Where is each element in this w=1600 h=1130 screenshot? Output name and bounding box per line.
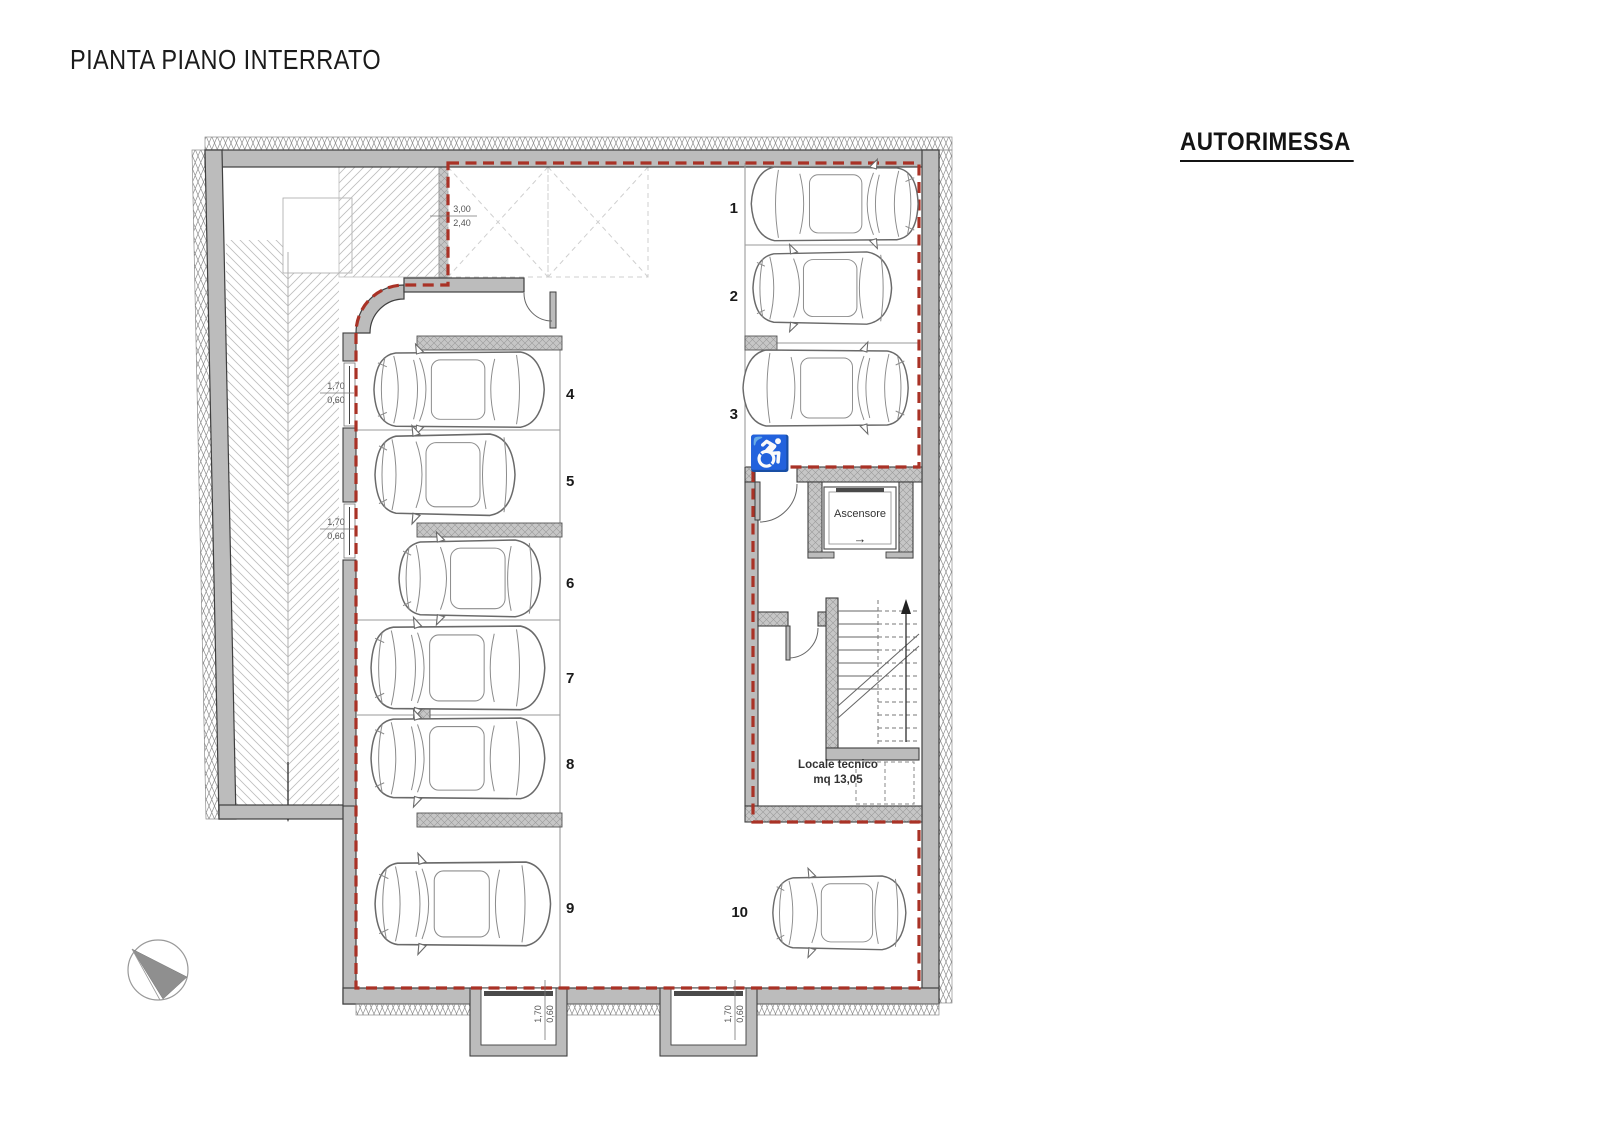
spot-number-3: 3 [730,406,738,423]
vent-window [344,504,355,558]
car-spot-6 [399,532,540,625]
car-spot-7 [371,617,545,718]
vent-window [344,363,355,426]
shaft-grille [674,991,743,996]
spot-number-9: 9 [566,900,574,917]
exterior-wall-bottom-insulation [567,1004,660,1015]
exterior-wall-bottom [343,988,939,1004]
exterior-wall-bottom-insulation [757,1004,939,1015]
ramp-bottom-wall [219,805,356,819]
car-spot-5 [375,426,515,524]
spot-number-8: 8 [566,756,574,773]
north-arrow-icon [128,940,188,1000]
accessible-parking-icon: ♿ [749,434,791,473]
ramp-garage-wall [343,333,356,806]
door-swing-top [524,292,556,328]
car-spot-2 [753,244,892,331]
dim-vent-height: 0,60 [327,395,345,405]
car-spot-4 [374,344,544,435]
spot-number-10: 10 [731,904,748,921]
dim-vent-width: 1,70 [327,517,345,527]
exterior-wall-bottom-insulation [356,1004,470,1015]
dim-ramp-width: 3,00 [453,204,471,214]
dim-shaft-width: 1,70 [723,1005,733,1023]
dim-shaft-width: 1,70 [533,1005,543,1023]
lower-left-wall [343,805,356,1004]
spot-number-1: 1 [730,200,738,217]
top-middle-wall [404,278,524,292]
shaft-grille [484,991,553,996]
car-spot-3 [743,342,908,434]
spot-number-2: 2 [730,288,738,305]
spot-number-5: 5 [566,473,574,490]
dim-ramp-height: 2,40 [453,218,471,228]
exterior-wall-top-insulation [205,137,952,150]
ramp [226,198,352,822]
car-spot-9 [375,853,550,954]
overhead-opening-trace [448,167,648,277]
dim-shaft-height: 0,60 [545,1005,555,1023]
dim-vent-height: 0,60 [327,531,345,541]
car-spot-10 [773,868,906,957]
technical-room-name: Locale tecnico [798,759,878,771]
exterior-wall-right-insulation [939,150,952,1003]
door-swing-technical-room [786,626,818,660]
floor-plan: Ascensore → Locale tecnico mq 13,05 [0,0,1600,1130]
technical-room-area: mq 13,05 [813,774,863,786]
dim-vent-width: 1,70 [327,381,345,391]
staircase-up-arrow-icon [901,599,911,742]
elevator-door [836,488,884,492]
elevator-direction-arrow: → [854,531,867,546]
spot-number-6: 6 [566,575,574,592]
spot-number-4: 4 [566,386,575,403]
car-spot-1 [751,159,918,248]
dim-shaft-height: 0,60 [735,1005,745,1023]
elevator-label: Ascensore [834,508,886,520]
exterior-wall-right [922,150,939,1003]
ramp-upper-opening [339,167,648,277]
car-spot-8 [371,710,545,808]
door-swing-lobby [755,482,797,522]
spot-number-7: 7 [566,670,574,687]
technical-room-label: Locale tecnico mq 13,05 [798,759,878,786]
elevator: Ascensore → [808,482,913,558]
